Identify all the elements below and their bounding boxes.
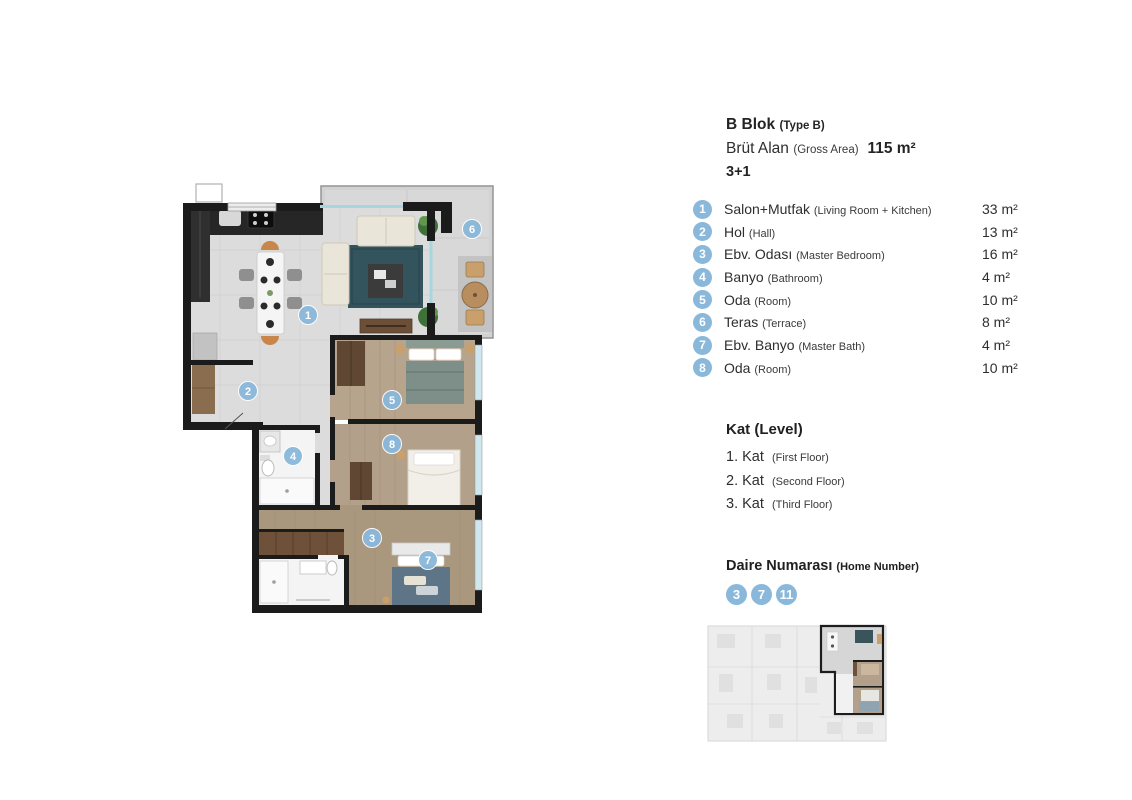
room-row: 1 Salon+Mutfak (Living Room + Kitchen) 3…	[693, 198, 1053, 221]
level-item: 2. Kat (Second Floor)	[726, 470, 845, 494]
room-label: Banyo (Bathroom)	[724, 266, 823, 291]
gross-area: Brüt Alan (Gross Area) 115 m²	[726, 138, 916, 162]
hall-cabinet	[193, 333, 217, 360]
room-row: 4 Banyo (Bathroom) 4 m²	[693, 266, 1053, 289]
plan-badge-3: 3	[363, 529, 382, 548]
svg-text:2: 2	[245, 386, 251, 398]
room-area: 10 m²	[982, 289, 1018, 312]
room-number-badge: 7	[693, 336, 712, 355]
plan-badge-7: 7	[419, 551, 438, 570]
room-number-badge: 8	[693, 358, 712, 377]
keyplan-bed	[861, 690, 879, 701]
plan-badge-4: 4	[284, 447, 303, 466]
svg-text:4: 4	[290, 451, 297, 463]
nightstand	[465, 344, 475, 354]
room-number-badge: 5	[693, 290, 712, 309]
plan-badge-5: 5	[383, 391, 402, 410]
room-row: 7 Ebv. Banyo (Master Bath) 4 m²	[693, 334, 1053, 357]
keyplan-bed	[861, 664, 879, 675]
room-area: 4 m²	[982, 266, 1010, 289]
room-row: 6 Teras (Terrace) 8 m²	[693, 311, 1053, 334]
key-plan	[707, 622, 888, 745]
stove	[248, 210, 274, 228]
level-item: 1. Kat (First Floor)	[726, 446, 845, 470]
plan-badge-1: 1	[299, 306, 318, 325]
svg-text:5: 5	[389, 395, 395, 407]
svg-text:1: 1	[305, 310, 311, 322]
terrace-chair	[466, 262, 484, 277]
home-number-badge: 3	[726, 584, 747, 605]
room-row: 2 Hol (Hall) 13 m²	[693, 221, 1053, 244]
room-label: Hol (Hall)	[724, 221, 775, 246]
floor-plan: 1 2 3 4 5 6 7	[180, 180, 500, 620]
keyplan-dining	[827, 632, 838, 651]
plan-badge-2: 2	[239, 382, 258, 401]
room-label: Teras (Terrace)	[724, 311, 806, 336]
plan-badge-6: 6	[463, 220, 482, 239]
room-area: 10 m²	[982, 357, 1018, 380]
toilet	[327, 561, 337, 575]
levels-title: Kat (Level)	[726, 420, 845, 440]
nightstand	[395, 344, 405, 354]
room-label: Oda (Room)	[724, 289, 791, 314]
layout-type: 3+1	[726, 161, 916, 184]
keyplan-rug	[855, 630, 873, 643]
room-area: 4 m²	[982, 334, 1010, 357]
room-number-badge: 3	[693, 245, 712, 264]
home-number-title: Daire Numarası (Home Number)	[726, 558, 919, 574]
shaft-box	[196, 184, 222, 202]
unit-header: B Blok (Type B) Brüt Alan (Gross Area) 1…	[726, 114, 916, 184]
room-row: 8 Oda (Room) 10 m²	[693, 357, 1053, 380]
terrace-chair	[466, 310, 484, 325]
svg-text:6: 6	[469, 224, 475, 236]
brochure-page: 1 2 3 4 5 6 7	[0, 0, 1132, 800]
closet	[259, 532, 344, 557]
room-number-badge: 6	[693, 313, 712, 332]
room-list: 1 Salon+Mutfak (Living Room + Kitchen) 3…	[693, 198, 1053, 380]
room-area: 16 m²	[982, 243, 1018, 266]
room-label: Ebv. Banyo (Master Bath)	[724, 334, 865, 359]
bed-room8	[408, 450, 460, 508]
home-number-badges: 3 7 11	[726, 584, 919, 605]
home-number-badge: 11	[776, 584, 797, 605]
sink	[300, 561, 326, 574]
room-label: Ebv. Odası (Master Bedroom)	[724, 243, 885, 268]
keyplan-bed	[859, 702, 879, 711]
room-area: 33 m²	[982, 198, 1018, 221]
nightstand	[383, 597, 390, 604]
room-number-badge: 2	[693, 222, 712, 241]
room-label: Salon+Mutfak (Living Room + Kitchen)	[724, 198, 932, 223]
level-item: 3. Kat (Third Floor)	[726, 493, 845, 517]
levels-section: Kat (Level) 1. Kat (First Floor) 2. Kat …	[726, 420, 845, 517]
room-number-badge: 4	[693, 268, 712, 287]
svg-text:8: 8	[389, 439, 395, 451]
bed-room5	[406, 338, 464, 404]
kitchen-sink	[219, 210, 241, 226]
room-number-badge: 1	[693, 200, 712, 219]
room-area: 8 m²	[982, 311, 1010, 334]
entry-closet	[192, 362, 215, 414]
home-number-section: Daire Numarası (Home Number) 3 7 11	[726, 558, 919, 605]
block-title: B Blok (Type B)	[726, 114, 916, 138]
svg-text:3: 3	[369, 533, 375, 545]
room-area: 13 m²	[982, 221, 1018, 244]
toilet	[262, 460, 274, 476]
room-row: 5 Oda (Room) 10 m²	[693, 289, 1053, 312]
plan-badge-8: 8	[383, 435, 402, 454]
home-number-badge: 7	[751, 584, 772, 605]
bed-room3	[383, 543, 451, 607]
room-label: Oda (Room)	[724, 357, 791, 382]
room-row: 3 Ebv. Odası (Master Bedroom) 16 m²	[693, 243, 1053, 266]
svg-text:7: 7	[425, 555, 431, 567]
